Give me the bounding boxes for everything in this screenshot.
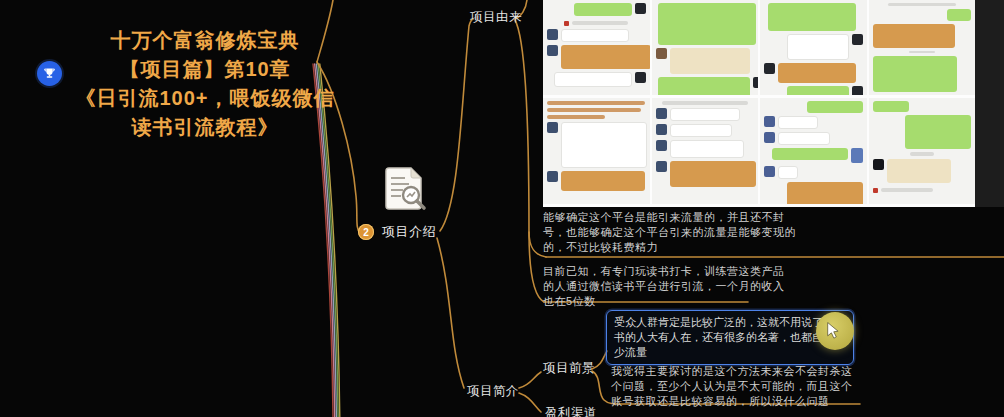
central-topic-line: 十万个富翁修炼宝典 [55,26,355,55]
chat-panel-7 [760,98,867,204]
central-topic-line: 《日引流100+，喂饭级微信 [55,84,355,113]
note-origin-1[interactable]: 能够确定这个平台是能引来流量的，并且还不封号，也能够确定这个平台引来的流量是能够… [543,210,797,255]
attached-image-wechat-collage[interactable] [543,0,975,207]
note-prospect[interactable]: 我觉得主要探讨的是这个方法未来会不会封杀这个问题，至少个人认为是不太可能的，而且… [611,364,855,409]
node-project-intro[interactable]: 2 项目介绍 [358,223,436,241]
node-label: 项目介绍 [382,223,436,241]
node-profit-channel[interactable]: 盈利渠道 [545,405,597,417]
image-right-margin [975,0,1004,207]
chat-panel-3 [760,0,867,95]
node-project-prospect[interactable]: 项目前景 [543,360,595,377]
chat-panel-5 [543,98,650,204]
node-project-origin[interactable]: 项目由来 [470,9,522,26]
mouse-cursor-icon [826,322,840,339]
priority-badge: 2 [358,224,374,240]
mindmap-canvas[interactable]: 十万个富翁修炼宝典 【项目篇】第10章 《日引流100+，喂饭级微信 读书引流教… [0,0,1004,417]
central-topic-line: 读书引流教程》 [55,113,355,142]
cursor-highlight [816,312,854,350]
node-project-brief[interactable]: 项目简介 [467,383,519,400]
chat-panel-6 [652,98,759,204]
chat-panel-4 [869,0,976,95]
document-search-icon [381,165,429,217]
central-topic-line: 【项目篇】第10章 [55,55,355,84]
central-topic[interactable]: 十万个富翁修炼宝典 【项目篇】第10章 《日引流100+，喂饭级微信 读书引流教… [55,26,355,142]
note-origin-2[interactable]: 目前已知，有专门玩读书打卡，训练营这类产品的人通过微信读书平台进行引流，一个月的… [543,264,787,309]
chat-panel-2 [652,0,759,95]
chat-panel-8 [869,98,976,204]
chat-panel-1 [543,0,650,95]
